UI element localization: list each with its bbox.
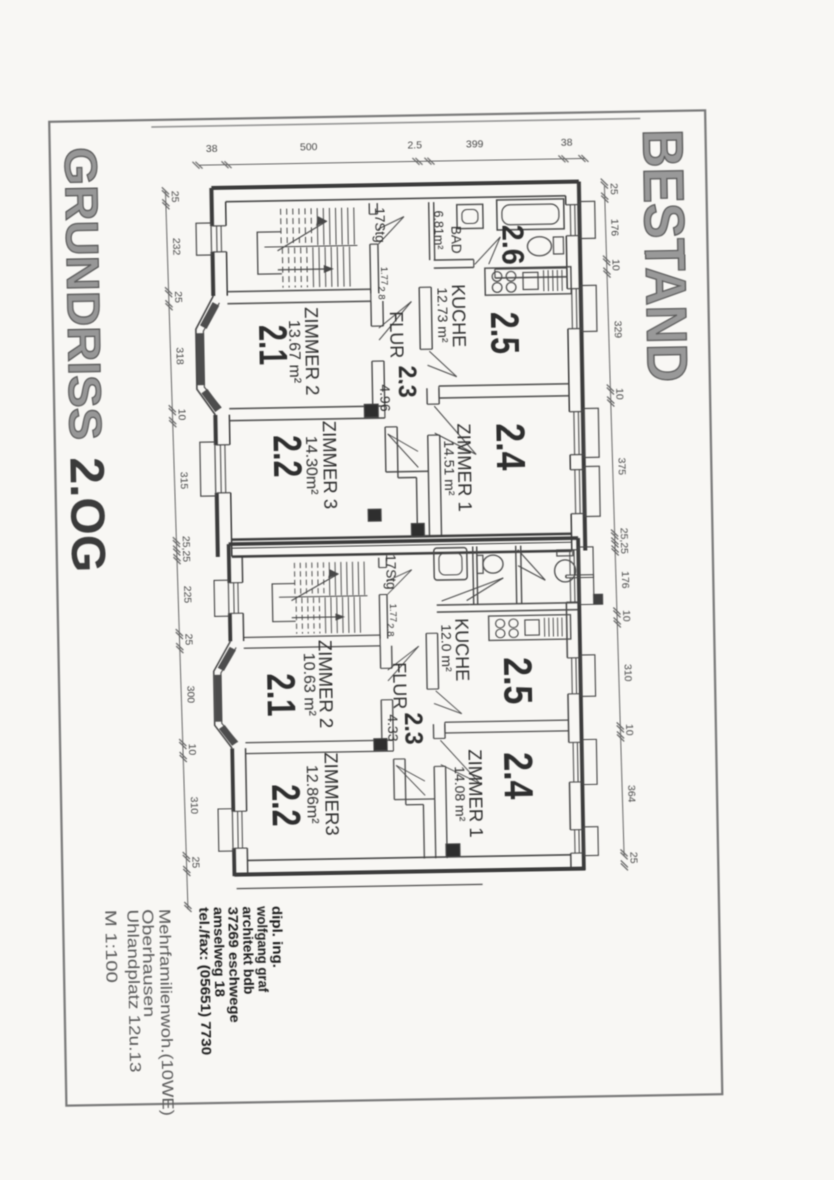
svg-text:1.77: 1.77	[378, 267, 389, 286]
svg-text:FLUR: FLUR	[389, 662, 410, 709]
svg-text:BESTAND: BESTAND	[630, 129, 698, 383]
svg-text:25: 25	[172, 291, 184, 303]
svg-text:38: 38	[561, 137, 573, 149]
svg-text:25: 25	[189, 856, 201, 868]
svg-text:17Stg: 17Stg	[372, 207, 388, 243]
svg-text:2.6: 2.6	[495, 224, 531, 265]
svg-text:12.73 m²: 12.73 m²	[434, 287, 451, 343]
svg-text:375: 375	[616, 457, 628, 475]
svg-text:25: 25	[607, 183, 619, 195]
svg-text:2.1: 2.1	[250, 325, 295, 366]
svg-text:6.81m²: 6.81m²	[431, 210, 446, 249]
svg-text:2.5: 2.5	[495, 657, 540, 705]
svg-text:10: 10	[623, 724, 635, 736]
svg-text:2.1: 2.1	[258, 673, 303, 717]
svg-text:2.8: 2.8	[384, 623, 395, 636]
svg-text:38: 38	[206, 143, 218, 155]
svg-text:25,25: 25,25	[179, 536, 191, 563]
svg-text:399: 399	[466, 138, 484, 150]
svg-text:176: 176	[608, 219, 620, 237]
svg-text:14.08 m²: 14.08 m²	[452, 766, 469, 822]
svg-text:364: 364	[625, 785, 637, 803]
svg-text:25: 25	[182, 633, 194, 645]
svg-text:2.2: 2.2	[265, 435, 310, 478]
svg-text:2.8: 2.8	[375, 286, 386, 299]
svg-text:176: 176	[619, 571, 631, 589]
svg-text:2.4: 2.4	[488, 423, 533, 471]
svg-text:37269 eschwege: 37269 eschwege	[225, 907, 242, 1024]
svg-text:232: 232	[170, 238, 182, 256]
svg-text:ZIMMER3: ZIMMER3	[320, 752, 342, 836]
svg-text:2.5: 2.5	[482, 312, 527, 355]
svg-text:2.OG: 2.OG	[59, 457, 114, 573]
svg-text:2.5: 2.5	[407, 139, 422, 151]
svg-text:2.3: 2.3	[393, 365, 422, 397]
svg-text:310: 310	[188, 797, 200, 815]
svg-text:GRUNDRISS: GRUNDRISS	[55, 147, 111, 441]
svg-text:10: 10	[620, 610, 632, 622]
svg-text:FLUR: FLUR	[386, 311, 407, 358]
svg-text:M 1:100: M 1:100	[101, 910, 119, 984]
svg-text:Mehrfamilienwoh.(10WE): Mehrfamilienwoh.(10WE)	[155, 909, 176, 1116]
svg-text:225: 225	[181, 586, 193, 604]
svg-text:2.2: 2.2	[263, 784, 308, 827]
svg-text:4.96: 4.96	[377, 384, 393, 412]
svg-text:4.33: 4.33	[385, 714, 401, 742]
svg-text:10: 10	[610, 259, 622, 271]
svg-text:2.3: 2.3	[399, 712, 428, 744]
svg-text:tel./fax: (05651) 7730: tel./fax: (05651) 7730	[196, 907, 214, 1055]
svg-text:14.51 m²: 14.51 m²	[441, 440, 458, 496]
svg-text:318: 318	[173, 347, 185, 365]
svg-text:25: 25	[627, 852, 639, 864]
svg-text:BAD: BAD	[448, 226, 463, 254]
svg-text:ZIMMER 2: ZIMMER 2	[300, 307, 323, 396]
svg-text:10: 10	[186, 743, 198, 755]
svg-text:1.77: 1.77	[387, 604, 398, 623]
svg-text:310: 310	[622, 664, 634, 682]
svg-text:17Stg: 17Stg	[383, 554, 399, 590]
svg-text:2.4: 2.4	[495, 752, 540, 800]
svg-text:Uhlandplatz 12u.13: Uhlandplatz 12u.13	[123, 909, 143, 1072]
svg-text:300: 300	[184, 686, 196, 704]
svg-text:329: 329	[611, 321, 623, 339]
svg-text:12.0 m²: 12.0 m²	[438, 624, 455, 672]
svg-text:10: 10	[175, 409, 187, 421]
svg-text:315: 315	[177, 472, 189, 490]
svg-text:ZIMMER 3: ZIMMER 3	[318, 421, 341, 510]
svg-text:500: 500	[300, 141, 318, 153]
svg-text:10: 10	[613, 388, 625, 400]
svg-text:25,25: 25,25	[618, 528, 630, 555]
svg-text:dipl. ing.: dipl. ing.	[269, 906, 285, 968]
svg-text:25: 25	[169, 191, 181, 203]
